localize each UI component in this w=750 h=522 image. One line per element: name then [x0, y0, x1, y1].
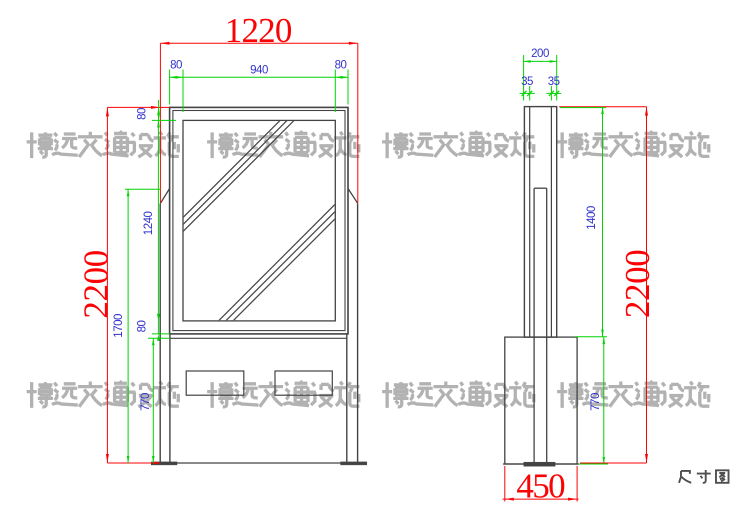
svg-text:2200: 2200 [77, 250, 116, 318]
svg-text:450: 450 [516, 467, 565, 506]
svg-text:35: 35 [521, 76, 533, 88]
svg-text:1220: 1220 [225, 11, 292, 50]
svg-text:1240: 1240 [143, 212, 155, 236]
svg-text:770: 770 [590, 393, 602, 411]
svg-text:35: 35 [548, 76, 560, 88]
svg-text:770: 770 [140, 393, 152, 411]
svg-text:940: 940 [250, 65, 268, 77]
svg-text:2200: 2200 [618, 250, 657, 318]
svg-text:1700: 1700 [113, 314, 125, 338]
svg-text:80: 80 [137, 321, 149, 333]
svg-text:80: 80 [170, 60, 182, 72]
svg-text:80: 80 [137, 108, 149, 120]
svg-text:200: 200 [531, 48, 549, 60]
svg-text:1400: 1400 [586, 206, 598, 230]
svg-text:80: 80 [335, 60, 347, 72]
